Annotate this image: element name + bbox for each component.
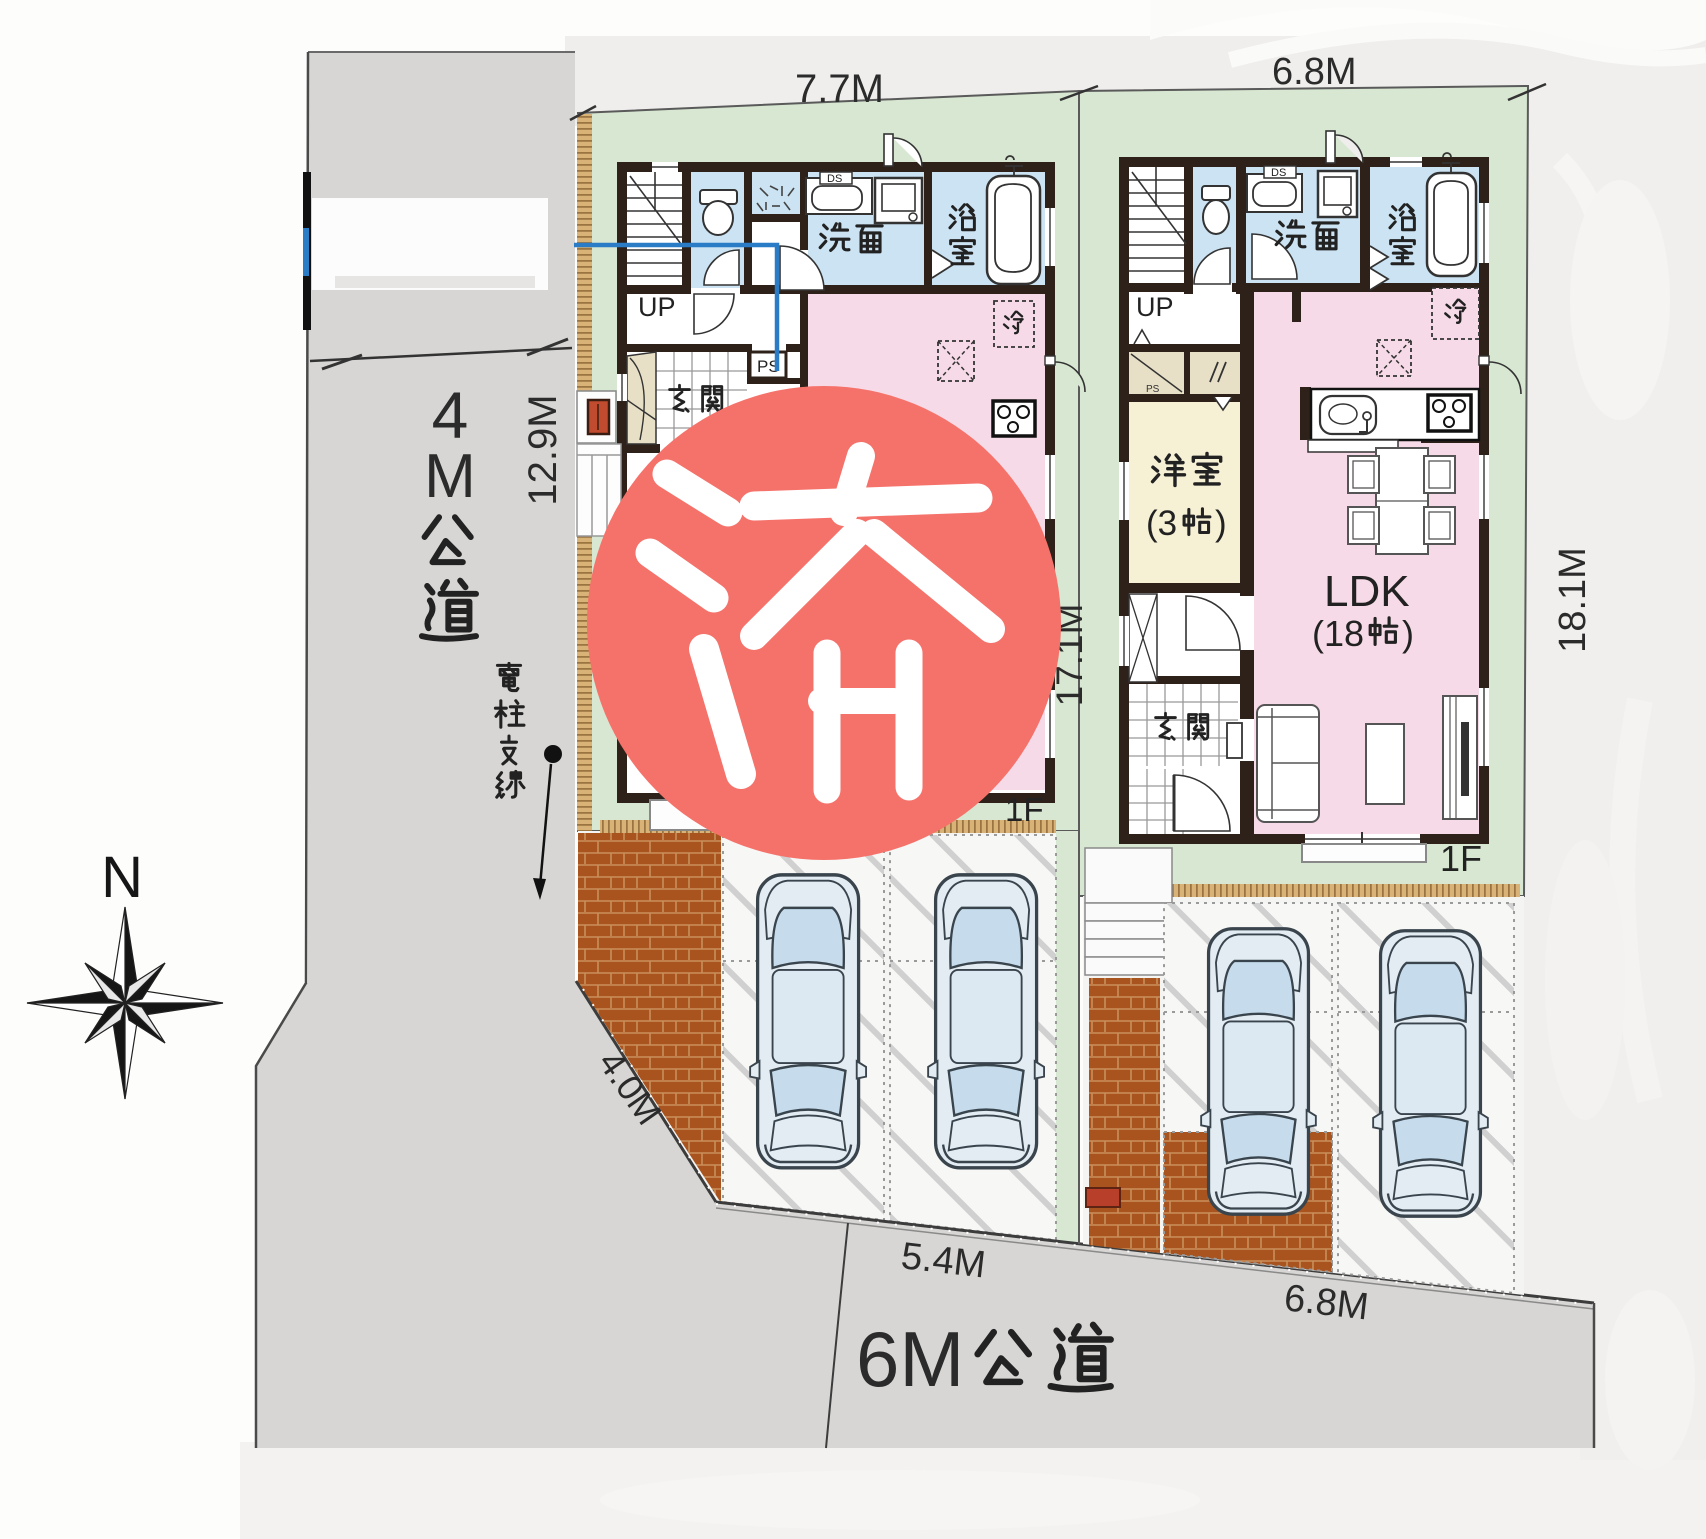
svg-text:6.8M: 6.8M [1272, 51, 1356, 93]
svg-text:PS: PS [1146, 384, 1160, 395]
svg-text:UP: UP [1136, 292, 1174, 322]
svg-text:): ) [1215, 504, 1227, 543]
svg-text:(3: (3 [1146, 504, 1177, 543]
svg-text:(18: (18 [1312, 613, 1364, 654]
svg-text:N: N [101, 845, 143, 910]
svg-text:LDK: LDK [1324, 567, 1410, 616]
svg-text:7.7M: 7.7M [795, 67, 884, 111]
svg-text:DS: DS [1271, 167, 1286, 179]
svg-text:4: 4 [432, 378, 469, 452]
svg-text:): ) [1402, 613, 1414, 654]
svg-text:18.1M: 18.1M [1552, 547, 1594, 653]
svg-text:6M: 6M [856, 1315, 964, 1403]
svg-text:DS: DS [827, 173, 842, 185]
svg-text:UP: UP [638, 292, 676, 322]
svg-text:M: M [424, 442, 476, 511]
svg-text:1F: 1F [1005, 791, 1044, 828]
svg-text:1F: 1F [1440, 838, 1482, 879]
svg-text:12.9M: 12.9M [521, 394, 565, 505]
